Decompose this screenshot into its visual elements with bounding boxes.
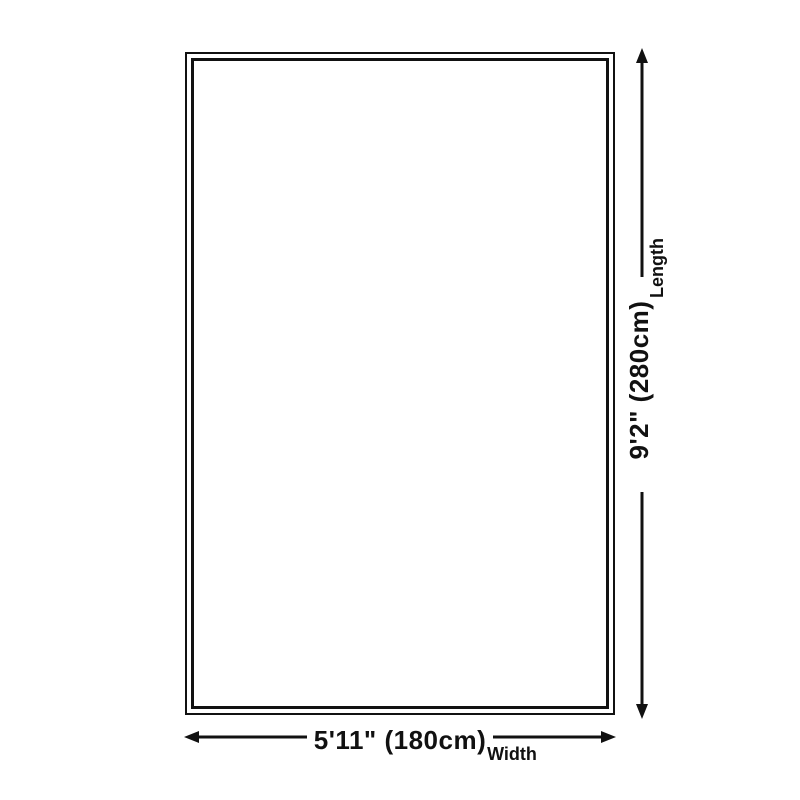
width-value-label: 5'11" (180cm)	[314, 727, 486, 753]
rug-size-diagram: 9'2" (280cm) Length 5'11" (180cm) Width	[0, 0, 800, 800]
arrowhead-down-icon	[636, 704, 648, 719]
arrowhead-right-icon	[601, 731, 616, 743]
arrowhead-up-icon	[636, 48, 648, 63]
rug-outline-inner	[191, 58, 609, 709]
width-name-label: Width	[487, 745, 537, 763]
length-name-label: Length	[648, 238, 666, 298]
length-value-label: 9'2" (280cm)	[626, 301, 652, 460]
arrowhead-left-icon	[184, 731, 199, 743]
rug-outline-outer	[185, 52, 615, 715]
